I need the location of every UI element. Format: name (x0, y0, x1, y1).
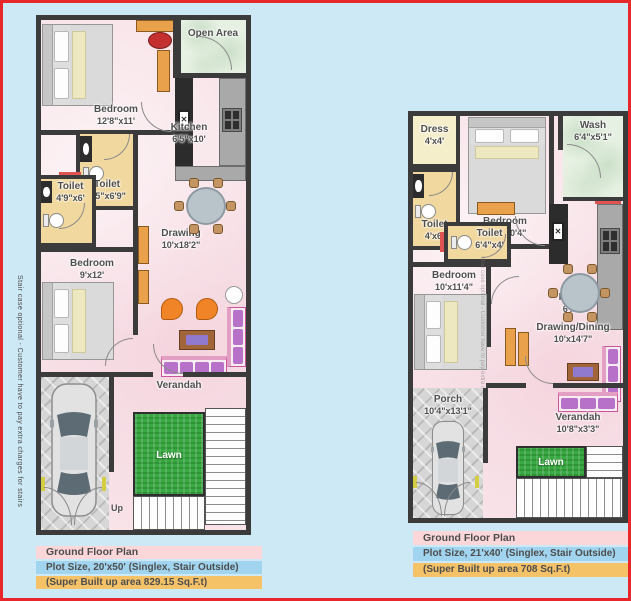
bed-headboard (43, 283, 53, 359)
lawn: Lawn (516, 446, 586, 478)
right-plan-footer: Ground Floor Plan Plot Size, 21'x40' (Si… (413, 531, 631, 577)
room-label-porch: Porch 10'4"x13'1" (413, 394, 483, 417)
coffee-table (567, 363, 599, 381)
bed-body (70, 283, 113, 359)
room-name: Wash (580, 120, 606, 132)
room-name: Open Area (188, 28, 238, 40)
room-label-drawing-dining: Drawing/Dining 10'x14'7" (525, 322, 621, 345)
wall (173, 20, 181, 78)
porch-garage (41, 377, 109, 530)
room-label-verandah: Verandah (143, 380, 215, 392)
room-size: 10'x18'2" (162, 240, 201, 251)
door-arc (515, 216, 545, 246)
room-name: Verandah (156, 380, 201, 392)
wall (133, 250, 138, 335)
toilet-icon (451, 235, 473, 250)
stair-disclaimer-note: Stair case optional - Customer have to p… (16, 275, 23, 530)
wall (109, 377, 114, 472)
built-up-area: (Super Built up area 829.15 Sq.F.t) (36, 576, 262, 589)
room-size: 10'x11'4" (435, 282, 473, 293)
bed (42, 282, 114, 360)
dining-table (560, 273, 600, 313)
door-arc (482, 234, 506, 258)
door-arc (525, 356, 553, 384)
wall (183, 372, 246, 377)
room-size: 6'5"x10' (172, 134, 206, 145)
plot-size: Plot Size, 20'x50' (Singlex, Stair Outsi… (36, 561, 262, 574)
door-arc (104, 134, 130, 160)
door-arc (491, 276, 519, 304)
washbasin-icon (80, 136, 92, 162)
room-name: Toilet (58, 181, 84, 193)
staircase (133, 496, 205, 530)
wall (486, 383, 526, 388)
dining-set (177, 180, 235, 232)
bed-headboard (43, 25, 53, 105)
room-label-open-area: Open Area (180, 28, 246, 40)
right-floor-plan: Dress 4'x4' Bedroom 9'8"x10'4" Wash 6'4"… (408, 111, 628, 523)
bed-pillows (469, 128, 545, 144)
dresser (477, 202, 515, 215)
bed-body (70, 25, 112, 105)
room-name: Kitchen (171, 122, 208, 134)
toilet-icon (415, 204, 437, 219)
bed-pillows (425, 295, 442, 369)
wall (483, 388, 488, 463)
tv-cabinet (505, 328, 516, 366)
room-name: Porch (434, 394, 462, 406)
room-label-verandah: Verandah 10'8"x3'3" (535, 412, 621, 435)
wall (413, 262, 511, 267)
bed-headboard (469, 118, 545, 128)
wardrobe (157, 50, 170, 92)
door-arc (429, 172, 453, 196)
threshold (59, 172, 81, 175)
left-plan-footer: Ground Floor Plan Plot Size, 20'x50' (Si… (36, 546, 262, 589)
pouf (196, 298, 218, 320)
threshold (440, 232, 444, 252)
porch: Porch 10'4"x13'1" (413, 388, 483, 518)
stove-icon (600, 228, 620, 254)
lawn: Lawn (133, 412, 205, 496)
room-label-wash: Wash 6'4"x5'1" (563, 120, 623, 143)
plot-size: Plot Size, 21'x40' (Singlex, Stair Outsi… (413, 547, 631, 561)
pouf (161, 298, 183, 320)
room-label-dress: Dress 4'x4' (413, 124, 456, 147)
room-name: Bedroom (432, 270, 476, 282)
bed (42, 24, 113, 106)
room-label-kitchen: Kitchen 6'5"x10' (149, 122, 229, 145)
room-name: Bedroom (70, 258, 114, 270)
bed (468, 117, 546, 214)
sofa (558, 392, 618, 412)
wall (558, 116, 563, 150)
room-size: 10'4"x13'1" (424, 406, 472, 417)
washbasin-icon (413, 174, 424, 198)
basin-red (148, 32, 172, 49)
wall (553, 383, 623, 388)
room-toilet2: Toilet 6'4"x4' (444, 222, 511, 263)
wall (41, 130, 77, 135)
lawn-label: Lawn (135, 450, 203, 461)
room-open-area: Open Area (175, 20, 246, 78)
room-name: Bedroom (94, 104, 138, 116)
door-arc (59, 203, 85, 229)
plan-title: Ground Floor Plan (413, 531, 631, 545)
room-size: 4'x4' (425, 136, 444, 147)
wall-shelf (136, 20, 178, 32)
room-name: Toilet (94, 179, 120, 191)
plan-title: Ground Floor Plan (36, 546, 262, 559)
room-label-bedroom2: Bedroom 9'x12' (51, 258, 133, 281)
built-up-area: (Super Built up area 708 Sq.F.t) (413, 563, 631, 577)
room-size: 9'x12' (80, 270, 104, 281)
room-toilet2: Toilet 4'9"x6' (41, 175, 96, 247)
staircase (586, 446, 623, 478)
floor-plan-sheet: Stair case optional - Customer have to p… (0, 0, 631, 601)
room-size: 12'8"x11' (97, 116, 135, 127)
room-name: Dress (421, 124, 449, 136)
wall (41, 247, 133, 252)
bed (414, 294, 487, 370)
bed-pillows (53, 283, 70, 359)
sofa (227, 307, 246, 367)
door-jamb (102, 477, 106, 491)
room-size: 10'x14'7" (554, 334, 593, 345)
door-arc (198, 36, 232, 70)
round-chair (225, 286, 243, 304)
room-name: Drawing/Dining (536, 322, 609, 334)
door-arc (567, 144, 601, 178)
bed-pillows (53, 25, 70, 105)
room-dress: Dress 4'x4' (413, 116, 460, 168)
dining-set (551, 266, 609, 320)
left-floor-plan: Open Area Bedroom 12'8"x11' Kitch (36, 15, 251, 535)
dining-table (186, 187, 226, 225)
staircase (205, 408, 246, 525)
geyser-icon (552, 222, 564, 241)
staircase (516, 478, 623, 518)
room-label-toilet2: Toilet 4'9"x6' (49, 181, 92, 204)
room-size: 6'4"x5'1" (574, 132, 612, 143)
wall (549, 116, 554, 204)
bed-headboard (415, 295, 425, 369)
tv-cabinet (138, 270, 149, 304)
door-jamb (475, 476, 479, 488)
coffee-table (179, 330, 215, 350)
up-label: Up (111, 503, 123, 513)
lawn-label: Lawn (518, 457, 584, 468)
room-size: 10'8"x3'3" (557, 424, 600, 435)
room-name: Verandah (555, 412, 600, 424)
door-arc (153, 344, 183, 374)
tv-cabinet (138, 226, 149, 264)
kitchen-counter (175, 166, 246, 181)
room-wash: Wash 6'4"x5'1" (563, 116, 623, 201)
